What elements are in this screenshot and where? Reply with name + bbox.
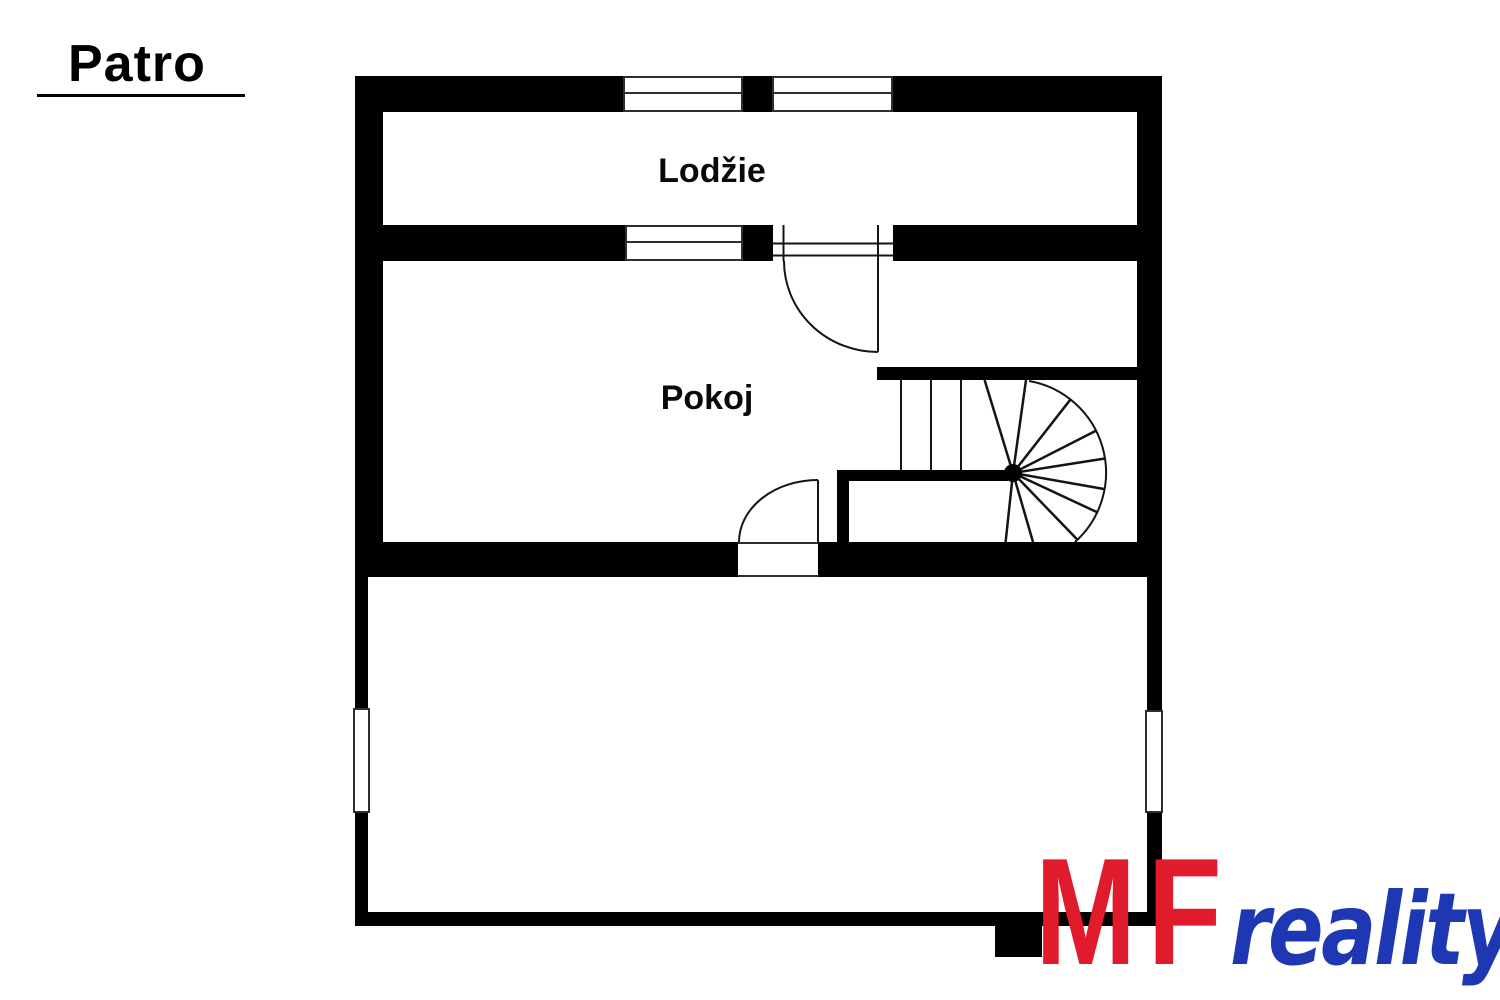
floor-plan-page: Patro — [0, 0, 1500, 1000]
spiral-staircase — [985, 380, 1106, 542]
room-label-loggia: Lodžie — [658, 154, 766, 188]
balcony-door-frame — [773, 225, 893, 261]
room-door-swing — [739, 480, 818, 542]
stair-newel-post — [1004, 464, 1022, 482]
room-label-bedroom: Pokoj — [661, 381, 754, 415]
plan-linework — [0, 0, 1500, 1000]
stair-treads — [901, 380, 961, 470]
balcony-door-swing — [784, 261, 878, 352]
